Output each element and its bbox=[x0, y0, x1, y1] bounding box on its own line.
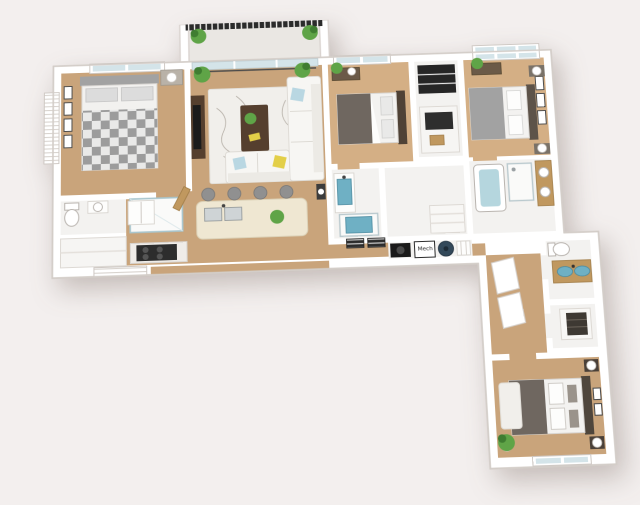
lamp bbox=[167, 73, 177, 83]
side-table bbox=[316, 184, 326, 200]
window-shutters-left bbox=[44, 93, 59, 164]
pillow bbox=[380, 97, 393, 115]
pillow-patterned bbox=[550, 408, 566, 429]
window-bedroom-bottom bbox=[532, 454, 591, 466]
toilet-leg bbox=[548, 242, 570, 256]
door-bedroom-right bbox=[473, 155, 497, 162]
closet-left bbox=[60, 237, 126, 268]
wall-frame bbox=[64, 135, 72, 148]
tv-console bbox=[191, 95, 206, 159]
walk-in-closet bbox=[560, 308, 593, 340]
island-sink bbox=[225, 207, 242, 220]
door-bedroom-middle bbox=[337, 163, 359, 170]
nightstand-right-bottom bbox=[534, 143, 551, 154]
bar-stool bbox=[202, 188, 215, 201]
bed-middle bbox=[337, 90, 408, 146]
wall-frame bbox=[64, 119, 72, 132]
door-leg-hall bbox=[472, 243, 486, 255]
door-bedroom-bottom bbox=[509, 353, 536, 360]
bed-left bbox=[80, 74, 160, 170]
blanket bbox=[469, 87, 506, 140]
blanket bbox=[337, 94, 373, 145]
closet-shelves-dark bbox=[417, 64, 456, 94]
wall-frame bbox=[594, 404, 602, 416]
pillow bbox=[506, 90, 521, 109]
lamp bbox=[348, 68, 356, 76]
wall-frame bbox=[535, 76, 544, 90]
pillow bbox=[121, 87, 153, 101]
shower-blue bbox=[339, 213, 378, 236]
nightstand-left-bedroom bbox=[161, 70, 183, 86]
toilet bbox=[65, 203, 79, 227]
bed-right bbox=[469, 84, 539, 142]
pillow bbox=[86, 88, 118, 102]
closet-tv bbox=[425, 112, 454, 130]
floorplan-scene: Mech bbox=[35, 11, 628, 501]
page: { "scene": { "type": "3d-floorplan-rende… bbox=[0, 0, 640, 480]
pillow-patterned bbox=[548, 383, 564, 404]
pillow-yellow bbox=[272, 155, 286, 169]
striped-cabinet bbox=[457, 241, 471, 255]
bath-sink bbox=[88, 201, 108, 213]
bathtub bbox=[473, 164, 506, 212]
nightstand-right-top bbox=[528, 65, 545, 77]
nightstand-bottom-top bbox=[584, 359, 599, 372]
linen-shelves bbox=[430, 204, 466, 233]
pillow-blue bbox=[233, 156, 247, 170]
drawer-unit bbox=[566, 312, 588, 335]
lamp bbox=[537, 144, 547, 153]
wall-frame bbox=[64, 86, 72, 99]
lamp bbox=[592, 438, 602, 448]
pillow-gray bbox=[567, 385, 578, 403]
floorplan-render: Mech bbox=[35, 11, 628, 501]
island-sink bbox=[204, 208, 221, 221]
lamp bbox=[586, 361, 596, 371]
lamp bbox=[532, 67, 541, 76]
pillow bbox=[508, 115, 523, 135]
refrigerator bbox=[128, 200, 154, 225]
pillow bbox=[381, 119, 394, 138]
coffee-table bbox=[240, 105, 269, 152]
vanity-right-bath bbox=[535, 160, 554, 205]
bottom-rug bbox=[499, 382, 523, 429]
bar-stool bbox=[228, 187, 241, 200]
pillow-blue bbox=[290, 87, 305, 101]
double-vanity bbox=[552, 260, 592, 283]
pillow-gray bbox=[569, 410, 580, 428]
range bbox=[130, 242, 187, 264]
wall-frame bbox=[537, 111, 546, 125]
shower-stall bbox=[507, 163, 533, 201]
closet-box bbox=[430, 135, 444, 145]
nightstand-bottom-low bbox=[589, 436, 604, 449]
vanity-blue-sink bbox=[334, 173, 356, 213]
checkered-blanket bbox=[82, 108, 158, 170]
mech-label: Mech bbox=[418, 246, 433, 253]
wall-frame bbox=[64, 103, 72, 116]
wall-frame bbox=[536, 93, 545, 107]
wall-frame bbox=[593, 388, 601, 400]
mech-closet: Mech bbox=[414, 241, 435, 258]
bar-stool bbox=[254, 186, 267, 199]
bar-stool bbox=[280, 185, 293, 198]
tv bbox=[193, 105, 202, 149]
